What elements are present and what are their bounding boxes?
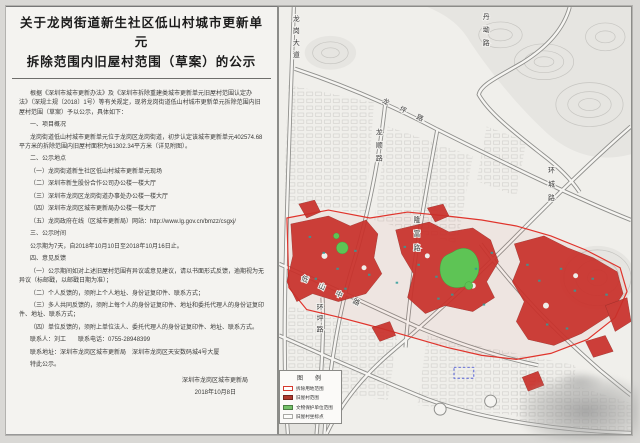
notice-title-line2: 拆除范围内旧屋村范围（草案）的公示: [16, 53, 267, 72]
notice-paragraph: （四）深圳市龙岗区城市更新局办公楼一楼大厅: [19, 205, 264, 214]
legend-item: 旧屋村坐标点: [283, 413, 338, 420]
map-panel: 龙岗大道 丹坳路 龙坪路 龙顺路 环城路 隆富路 低山中路 环坪路 图 例 拆除…: [278, 6, 632, 435]
notice-paragraph: 龙岗街道低山村城市更新单元位于龙岗区龙岗街道，初步认定该城市更新单元402574…: [19, 134, 264, 153]
watermark-blur: [521, 376, 639, 440]
roundabout: [434, 403, 446, 415]
notice-section-heading: 三、公示时间: [19, 230, 264, 239]
notice-contact-line: 联系人：刘工 联系电话：0755-28948399: [19, 336, 264, 345]
notice-paragraph: （三）多人共同反馈的，须附上每个人的身份证复印件、地址和委托代理人的身份证复印件…: [19, 302, 264, 321]
notice-paragraph: （五）龙岗政府在线（区城市更新局）网站：http://www.lg.gov.cn…: [19, 218, 264, 227]
legend-item-label: 旧屋村坐标点: [296, 413, 324, 419]
map-legend: 图 例 拆除用地范围 旧屋村范围 文物保护单位范围 旧屋村坐标点: [279, 370, 342, 424]
signature-date: 2018年10月8日: [19, 389, 236, 398]
signature-block: 深圳市龙岗区城市更新局 2018年10月8日: [19, 377, 264, 399]
notice-section-heading: 二、公示地点: [19, 155, 264, 164]
legend-item-label: 拆除用地范围: [296, 385, 324, 391]
notice-body: 根据《深圳市城市更新办法》及《深圳市拆除重建类城市更新单元旧屋村范围认定办法》（…: [6, 79, 277, 398]
notice-title-line1: 关于龙岗街道新生社区低山村城市更新单元: [16, 14, 267, 53]
legend-title: 图 例: [283, 373, 338, 382]
legend-item: 拆除用地范围: [283, 385, 338, 392]
legend-swatch-heritage: [283, 405, 293, 410]
notice-paragraph: （四）单位反馈的，须附上单位法人、委托代理人的身份证复印件、地址、联系方式。: [19, 324, 264, 333]
notice-paragraph: （三）深圳市龙岗区龙岗街道办事处办公楼一楼大厅: [19, 193, 264, 202]
legend-item: 旧屋村范围: [283, 394, 338, 401]
notice-section-heading: 四、意见反馈: [19, 255, 264, 264]
legend-item-label: 文物保护单位范围: [296, 404, 333, 410]
notice-paragraph: 公示期为7天，自2018年10月10日至2018年10月16日止。: [19, 243, 264, 252]
legend-swatch-coordinate-point: [283, 414, 293, 419]
scanned-notice-page: 关于龙岗街道新生社区低山村城市更新单元 拆除范围内旧屋村范围（草案）的公示 根据…: [0, 0, 640, 443]
notice-paragraph: （二）个人反馈的，须附上个人地址、身份证复印件、联系方式；: [19, 290, 264, 299]
legend-swatch-demolition-boundary: [283, 386, 293, 391]
notice-paragraph: （一）龙岗街道新生社区低山村城市更新单元现场: [19, 168, 264, 177]
notice-title: 关于龙岗街道新生社区低山村城市更新单元 拆除范围内旧屋村范围（草案）的公示: [6, 7, 277, 76]
legend-swatch-old-village: [283, 395, 293, 400]
signature-org: 深圳市龙岗区城市更新局: [19, 377, 248, 386]
paper-sheet: 关于龙岗街道新生社区低山村城市更新单元 拆除范围内旧屋村范围（草案）的公示 根据…: [5, 5, 633, 436]
legend-item: 文物保护单位范围: [283, 404, 338, 411]
notice-section-heading: 一、项目概况: [19, 121, 264, 130]
notice-paragraph: （一）公示期间如对上述旧屋村范围有异议或意见建议，请以书面形式反馈，逾期视为无异…: [19, 268, 264, 287]
notice-contact-address: 联系地址：深圳市龙岗区城市更新局 深圳市龙岗区天安数码城4号大厦: [19, 349, 264, 358]
notice-document: 关于龙岗街道新生社区低山村城市更新单元 拆除范围内旧屋村范围（草案）的公示 根据…: [6, 6, 278, 435]
notice-paragraph: （二）深圳市新生股份合作公司办公楼一楼大厅: [19, 180, 264, 189]
legend-item-label: 旧屋村范围: [296, 394, 319, 400]
notice-paragraph: 根据《深圳市城市更新办法》及《深圳市拆除重建类城市更新单元旧屋村范围认定办法》（…: [19, 90, 264, 118]
notice-closing: 特此公示。: [19, 361, 264, 370]
roundabout: [485, 395, 497, 407]
